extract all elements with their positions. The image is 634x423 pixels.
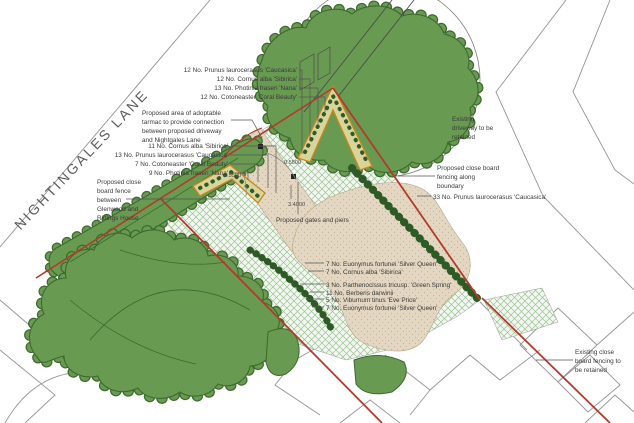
plant-label: 5 No. Viburnum tinus 'Eve Price': [326, 297, 417, 304]
note-line: Existing close: [575, 349, 615, 356]
plant-label: 11 No. Cornus alba 'Sibirica': [148, 143, 228, 150]
site-plan-svg: NIGHTINGALES LANE 12 No. Prunus laurocer…: [0, 0, 634, 423]
note-line: Ridings House: [97, 215, 139, 222]
plant-label: 3 No. Parthenocissus tricusp. 'Green Spr…: [326, 282, 451, 289]
plant-label: 7 No. Euonymus fortunei 'Silver Queen': [326, 305, 438, 312]
note-line: between: [97, 197, 122, 204]
note-line: Proposed close board: [437, 165, 500, 172]
note-line: tarmac to provide connection: [142, 119, 225, 126]
note-line: board fence: [97, 188, 131, 195]
plant-label: 12 No. Cotoneaster 'Coral Beauty': [200, 94, 297, 101]
gates-piers-label: Proposed gates and piers: [276, 217, 349, 224]
prunus-33-label: 33 No. Prunus laurocerasus 'Caucasica': [433, 194, 546, 201]
note-line: be retained: [575, 367, 607, 374]
note-line: boundary: [437, 183, 464, 190]
pier-dimension-left: 0.5500: [224, 173, 241, 179]
note-line: fencing along: [437, 174, 475, 181]
plant-label: 7 No. Euonymus fortunei 'Silver Queen': [326, 261, 438, 268]
plant-label: 7 No. Cornus alba 'Sibirica': [326, 269, 403, 276]
gate-width-dimension: 3.4000: [288, 202, 305, 208]
landscape-plan-drawing: NIGHTINGALES LANE 12 No. Prunus laurocer…: [0, 0, 634, 423]
note-line: driveway to be: [452, 125, 494, 132]
plant-label: 9 No. Photinia fraseri 'Nana': [149, 170, 228, 177]
note-line: Proposed close: [97, 179, 141, 186]
note-line: between proposed driveway: [142, 128, 222, 135]
note-line: board fencing to: [575, 358, 621, 365]
pier-dimension-right: 0.5500: [284, 160, 301, 166]
plant-label: 13 No. Prunus laurocerasus 'Caucasica': [115, 152, 228, 159]
plant-label: 12 No. Prunus laurocerasus 'Caucasica': [184, 67, 297, 74]
note-line: Existing: [452, 116, 475, 123]
plant-label: 12 No. Cornus alba 'Sibirica': [217, 76, 297, 83]
note-line: Proposed area of adoptable: [142, 110, 221, 117]
gate-pier-left: [258, 144, 263, 149]
plant-label: 11 No. Berberis darwinii: [326, 290, 393, 297]
plant-label: 7 No. Cotoneaster 'Coral Beauty': [135, 161, 228, 168]
note-line: retained: [452, 134, 476, 141]
note-line: Glenwood and: [97, 206, 139, 213]
plant-label: 13 No. Photinia fraseri 'Nana': [214, 85, 297, 92]
